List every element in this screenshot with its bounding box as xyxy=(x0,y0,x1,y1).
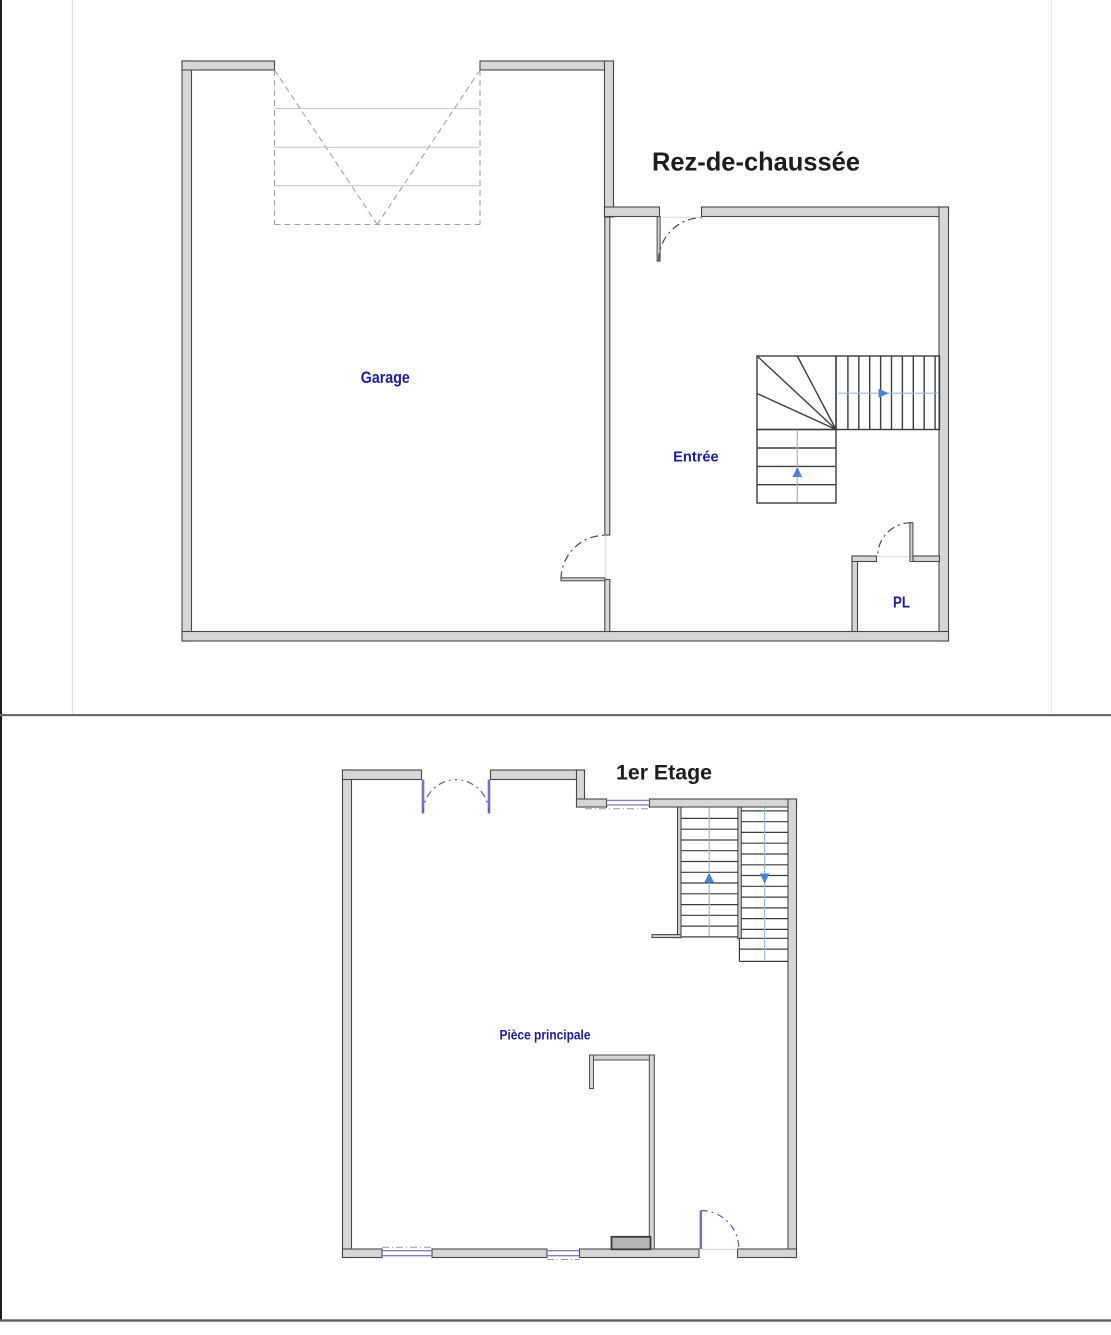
svg-text:Rez-de-chaussée: Rez-de-chaussée xyxy=(652,147,860,177)
svg-text:Garage: Garage xyxy=(361,368,410,387)
svg-text:1er Etage: 1er Etage xyxy=(616,761,712,784)
svg-text:Pièce principale: Pièce principale xyxy=(500,1027,591,1042)
svg-text:Entrée: Entrée xyxy=(673,449,719,466)
svg-text:PL: PL xyxy=(893,595,910,612)
